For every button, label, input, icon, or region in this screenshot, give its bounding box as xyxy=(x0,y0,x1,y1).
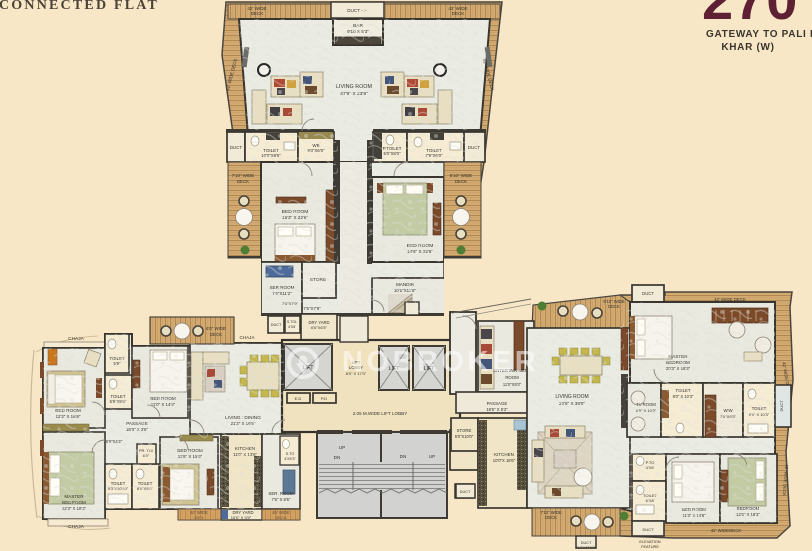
svg-text:270: 270 xyxy=(702,0,798,31)
svg-text:DECK: DECK xyxy=(545,515,557,520)
svg-text:DUCT: DUCT xyxy=(460,490,471,494)
svg-text:P.D: P.D xyxy=(321,396,327,401)
svg-text:DECK: DECK xyxy=(452,11,466,16)
svg-text:STORE: STORE xyxy=(457,428,472,433)
svg-text:UP: UP xyxy=(429,454,435,459)
svg-text:DUCT: DUCT xyxy=(779,400,784,412)
svg-text:DUCT: DUCT xyxy=(642,291,654,296)
svg-text:PASSAGE: PASSAGE xyxy=(487,401,508,406)
svg-text:S.TO: S.TO xyxy=(286,452,295,456)
svg-text:GATEWAY TO PALI HIL: GATEWAY TO PALI HIL xyxy=(706,29,812,40)
svg-text:ELEVATION: ELEVATION xyxy=(575,545,596,550)
svg-text:DUCT: DUCT xyxy=(642,527,654,532)
svg-text:7'10" WIDE: 7'10" WIDE xyxy=(232,173,254,178)
svg-text:KITCHEN: KITCHEN xyxy=(494,452,514,457)
svg-text:DUCT: DUCT xyxy=(271,323,282,327)
svg-text:CHAJA: CHAJA xyxy=(68,336,85,342)
svg-text:2.05 M.WIDE LIFT LOBBY: 2.05 M.WIDE LIFT LOBBY xyxy=(353,411,408,416)
svg-text:NOBROKER: NOBROKER xyxy=(342,346,539,378)
svg-text:CONNECTED FLAT: CONNECTED FLAT xyxy=(0,0,159,13)
svg-text:CHAJA: CHAJA xyxy=(239,335,255,340)
svg-text:10'0" X 3'9": 10'0" X 3'9" xyxy=(231,515,252,520)
svg-text:KHAR (W): KHAR (W) xyxy=(721,42,774,53)
svg-text:4'X6': 4'X6' xyxy=(288,325,296,329)
svg-text:7'6" X 8'6": 7'6" X 8'6" xyxy=(271,497,291,502)
svg-text:DECK: DECK xyxy=(608,304,620,309)
svg-text:DUCT - :-: DUCT - :- xyxy=(347,8,367,13)
svg-text:SER. ROOM: SER. ROOM xyxy=(268,491,293,496)
svg-text:42' WIDEDECK: 42' WIDEDECK xyxy=(711,528,742,533)
svg-text:DN: DN xyxy=(334,455,341,460)
svg-text:DN: DN xyxy=(400,454,407,459)
svg-text:6'6"X6'5": 6'6"X6'5" xyxy=(311,325,328,330)
svg-text:DECK: DECK xyxy=(251,11,265,16)
svg-text:CHAJA: CHAJA xyxy=(68,524,85,530)
svg-text:10'0"X 18'6": 10'0"X 18'6" xyxy=(493,458,516,463)
svg-text:FEATURE: FEATURE xyxy=(641,544,659,549)
svg-text:E.D: E.D xyxy=(295,396,302,401)
svg-text:S.TOL: S.TOL xyxy=(287,320,297,324)
svg-text:5'0"X10'0": 5'0"X10'0" xyxy=(455,434,474,439)
svg-text:6'10" WIDE: 6'10" WIDE xyxy=(450,173,472,178)
svg-text:DECK: DECK xyxy=(455,179,467,184)
svg-text:UP: UP xyxy=(339,445,345,450)
svg-text:DECK: DECK xyxy=(210,332,222,337)
svg-text:11'0"X9'3": 11'0"X9'3" xyxy=(503,382,522,387)
svg-text:DUCT: DUCT xyxy=(230,145,243,150)
svg-text:4'X5'3": 4'X5'3" xyxy=(284,457,296,461)
svg-text:18'6" X 5'3": 18'6" X 5'3" xyxy=(486,407,508,412)
svg-text:DECK: DECK xyxy=(237,179,249,184)
svg-text:6'0" WIDE: 6'0" WIDE xyxy=(206,326,226,331)
